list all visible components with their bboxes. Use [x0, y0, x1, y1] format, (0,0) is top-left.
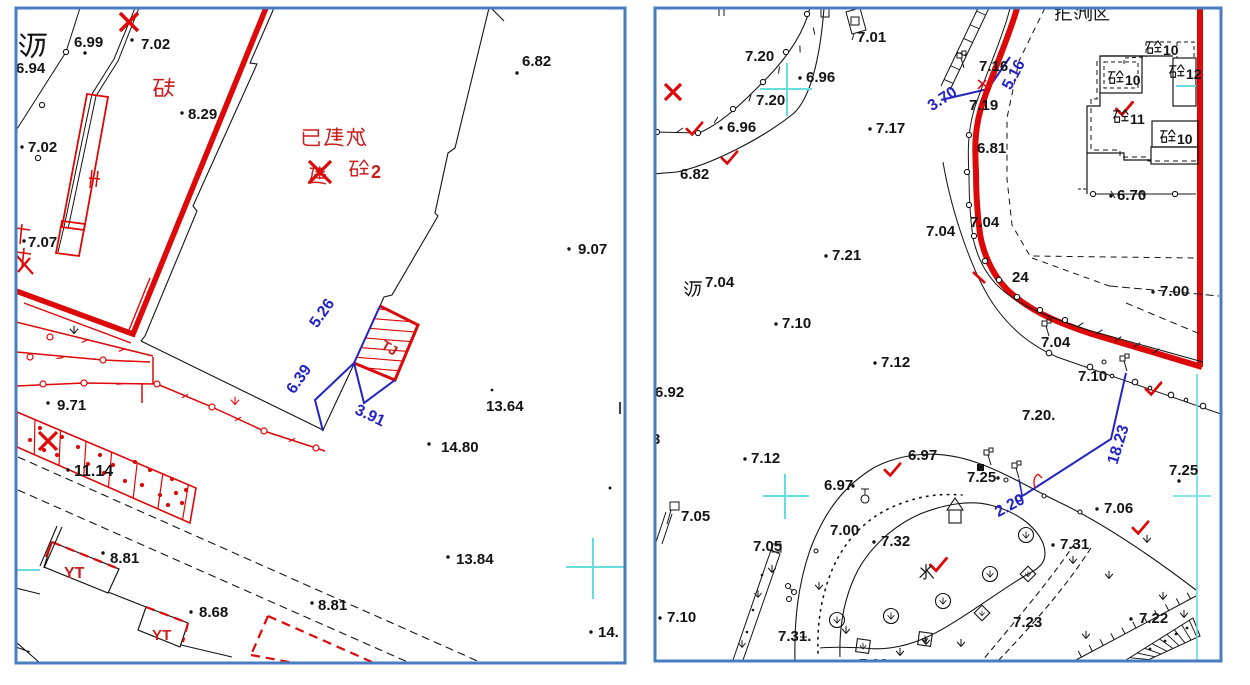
svg-text:9.71: 9.71: [57, 397, 86, 414]
svg-text:2: 2: [371, 162, 381, 182]
svg-text:7.04: 7.04: [926, 223, 956, 240]
svg-text:13.84: 13.84: [456, 551, 494, 568]
svg-text:6.82: 6.82: [522, 53, 551, 70]
svg-text:7.04: 7.04: [1041, 334, 1071, 351]
svg-text:6.99: 6.99: [74, 34, 103, 51]
svg-text:7.06: 7.06: [1104, 500, 1133, 517]
svg-text:8.81: 8.81: [110, 550, 139, 567]
svg-text:7.32: 7.32: [881, 533, 910, 550]
svg-text:7.22: 7.22: [1139, 610, 1168, 627]
svg-text:10: 10: [1125, 72, 1141, 88]
svg-text:7.10: 7.10: [782, 315, 811, 332]
svg-text:7.16: 7.16: [979, 58, 1008, 75]
svg-text:6.82: 6.82: [680, 166, 709, 183]
svg-text:7.05: 7.05: [753, 538, 782, 555]
svg-text:7.12: 7.12: [751, 450, 780, 467]
svg-text:7.25: 7.25: [967, 469, 996, 486]
svg-text:7.02: 7.02: [28, 139, 57, 156]
svg-text:7.23: 7.23: [1013, 614, 1042, 631]
svg-text:10: 10: [1163, 42, 1179, 58]
svg-text:7.17: 7.17: [876, 120, 905, 137]
svg-text:YT: YT: [64, 565, 85, 582]
svg-text:10: 10: [1177, 131, 1193, 147]
svg-text:6.94: 6.94: [16, 60, 46, 77]
svg-text:7.00: 7.00: [1160, 283, 1189, 300]
svg-text:7.00: 7.00: [830, 522, 859, 539]
svg-text:7.25: 7.25: [1169, 462, 1198, 479]
svg-text:8.68: 8.68: [199, 604, 228, 621]
svg-text:7.31: 7.31: [1060, 536, 1089, 553]
svg-text:6.70: 6.70: [1117, 187, 1146, 204]
svg-text:6.96: 6.96: [806, 69, 835, 86]
svg-text:11: 11: [1130, 111, 1145, 127]
svg-text:7.01: 7.01: [857, 29, 886, 46]
svg-text:6.97: 6.97: [908, 447, 937, 464]
svg-text:6.96: 6.96: [727, 119, 756, 136]
svg-text:13.64: 13.64: [486, 398, 524, 415]
svg-text:24: 24: [1012, 269, 1029, 286]
svg-text:12: 12: [1186, 66, 1202, 82]
svg-text:6.81: 6.81: [977, 140, 1006, 157]
svg-text:6.97: 6.97: [824, 477, 853, 494]
svg-text:7.05: 7.05: [681, 508, 710, 525]
svg-text:11.14: 11.14: [74, 463, 113, 480]
svg-text:7.10: 7.10: [1078, 368, 1107, 385]
svg-text:7.21: 7.21: [832, 247, 861, 264]
svg-text:7.19: 7.19: [969, 97, 998, 114]
svg-text:7.07: 7.07: [28, 234, 57, 251]
svg-text:7.10: 7.10: [667, 609, 696, 626]
svg-text:7.20: 7.20: [756, 92, 785, 109]
svg-text:7.04: 7.04: [970, 214, 1000, 231]
svg-text:7.04: 7.04: [705, 274, 735, 291]
svg-text:YT: YT: [152, 627, 171, 644]
svg-text:7.31.: 7.31.: [778, 628, 811, 645]
svg-text:7.02: 7.02: [141, 36, 170, 53]
svg-text:7.20.: 7.20.: [1022, 407, 1055, 424]
svg-text:9.07: 9.07: [578, 241, 607, 258]
svg-text:14.: 14.: [598, 624, 619, 641]
svg-text:14.80: 14.80: [441, 439, 479, 456]
svg-text:7.20: 7.20: [745, 48, 774, 65]
svg-text:8.81: 8.81: [318, 597, 347, 614]
svg-text:6.92: 6.92: [655, 384, 684, 401]
svg-text:7.12: 7.12: [881, 354, 910, 371]
svg-text:8.29: 8.29: [188, 106, 217, 123]
